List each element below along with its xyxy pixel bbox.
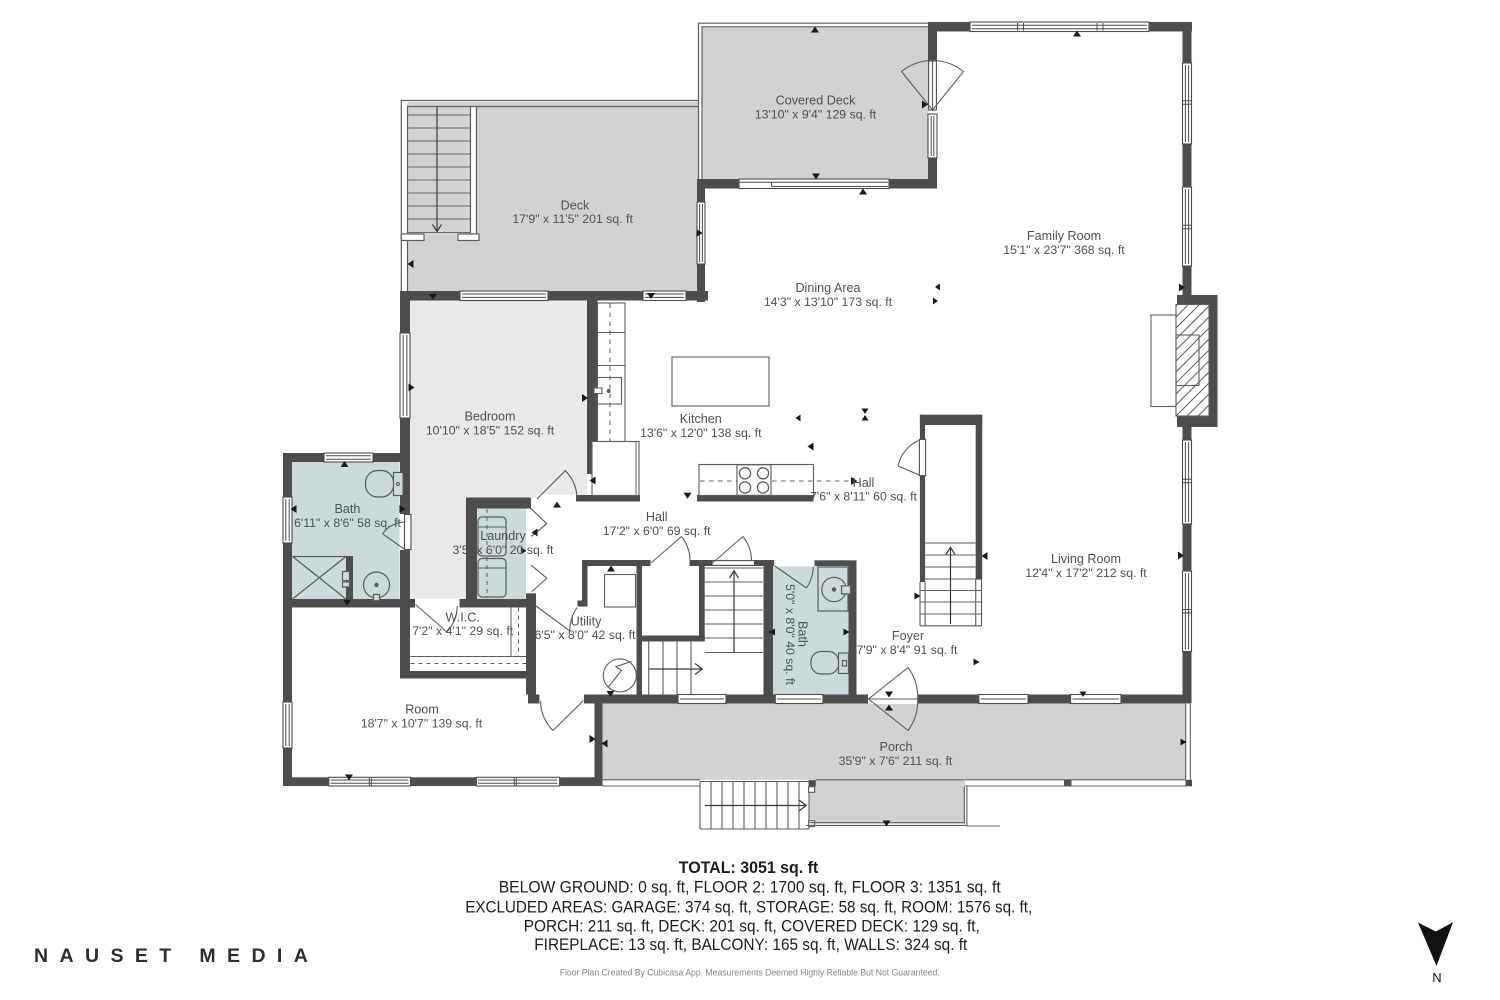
svg-text:Bath: Bath xyxy=(335,502,361,516)
svg-text:Kitchen: Kitchen xyxy=(680,412,722,426)
svg-text:18'7" x 10'7" 139 sq. ft: 18'7" x 10'7" 139 sq. ft xyxy=(361,717,483,731)
svg-text:17'2" x 6'0" 69 sq. ft: 17'2" x 6'0" 69 sq. ft xyxy=(603,524,711,538)
svg-text:N: N xyxy=(1432,970,1441,985)
svg-text:Porch: Porch xyxy=(880,740,913,754)
svg-text:Hall: Hall xyxy=(853,476,875,490)
svg-text:14'3" x 13'10" 173 sq. ft: 14'3" x 13'10" 173 sq. ft xyxy=(764,295,893,309)
svg-text:Living Room: Living Room xyxy=(1051,552,1121,566)
svg-text:15'1" x 23'7" 368 sq. ft: 15'1" x 23'7" 368 sq. ft xyxy=(1003,243,1125,257)
svg-text:Utility: Utility xyxy=(571,615,602,629)
svg-text:12'4" x 17'2" 212 sq. ft: 12'4" x 17'2" 212 sq. ft xyxy=(1025,566,1147,580)
svg-text:TOTAL: 3051 sq. ft: TOTAL: 3051 sq. ft xyxy=(679,859,819,877)
svg-text:NAUSET MEDIA: NAUSET MEDIA xyxy=(34,945,319,967)
svg-text:Bedroom: Bedroom xyxy=(464,410,515,424)
svg-text:5'0" x 8'0" 40 sq. ft: 5'0" x 8'0" 40 sq. ft xyxy=(783,584,797,686)
svg-text:7'6" x 8'11" 60 sq. ft: 7'6" x 8'11" 60 sq. ft xyxy=(810,490,917,504)
svg-text:Foyer: Foyer xyxy=(892,629,924,643)
svg-text:13'6" x 12'0" 138 sq. ft: 13'6" x 12'0" 138 sq. ft xyxy=(640,426,762,440)
svg-text:EXCLUDED AREAS: GARAGE: 374 sq: EXCLUDED AREAS: GARAGE: 374 sq. ft, STOR… xyxy=(465,898,1032,916)
svg-text:Deck: Deck xyxy=(561,199,590,213)
svg-text:7'2" x 4'1" 29 sq. ft: 7'2" x 4'1" 29 sq. ft xyxy=(412,624,514,638)
svg-text:PORCH: 211 sq. ft, DECK: 201 s: PORCH: 211 sq. ft, DECK: 201 sq. ft, COV… xyxy=(524,917,980,935)
svg-text:FIREPLACE: 13 sq. ft, BALCONY:: FIREPLACE: 13 sq. ft, BALCONY: 165 sq. f… xyxy=(534,936,967,954)
svg-text:7'9" x 8'4" 91 sq. ft: 7'9" x 8'4" 91 sq. ft xyxy=(857,643,959,657)
svg-text:Dining Area: Dining Area xyxy=(795,281,860,295)
svg-text:Floor Plan Created By Cubicasa: Floor Plan Created By Cubicasa App. Meas… xyxy=(560,968,940,978)
svg-text:Laundry: Laundry xyxy=(480,529,526,543)
svg-text:13'10" x 9'4" 129 sq. ft: 13'10" x 9'4" 129 sq. ft xyxy=(755,108,877,122)
svg-text:10'10" x 18'5" 152 sq. ft: 10'10" x 18'5" 152 sq. ft xyxy=(426,423,555,437)
svg-text:Family Room: Family Room xyxy=(1027,229,1101,243)
svg-text:W.I.C.: W.I.C. xyxy=(446,611,480,625)
svg-text:35'9" x 7'6" 211 sq. ft: 35'9" x 7'6" 211 sq. ft xyxy=(839,754,953,768)
svg-text:BELOW GROUND: 0 sq. ft, FLOOR: BELOW GROUND: 0 sq. ft, FLOOR 2: 1700 sq… xyxy=(499,878,1001,896)
svg-text:6'5" x 8'0" 42 sq. ft: 6'5" x 8'0" 42 sq. ft xyxy=(535,628,637,642)
svg-text:Hall: Hall xyxy=(646,510,668,524)
svg-text:6'11" x 8'6" 58 sq. ft: 6'11" x 8'6" 58 sq. ft xyxy=(294,516,401,530)
svg-text:17'9" x 11'5" 201 sq. ft: 17'9" x 11'5" 201 sq. ft xyxy=(512,212,633,226)
svg-text:Covered Deck: Covered Deck xyxy=(776,94,856,108)
svg-text:Room: Room xyxy=(405,703,439,717)
svg-text:3'5" x 6'0" 20 sq. ft: 3'5" x 6'0" 20 sq. ft xyxy=(453,543,555,557)
